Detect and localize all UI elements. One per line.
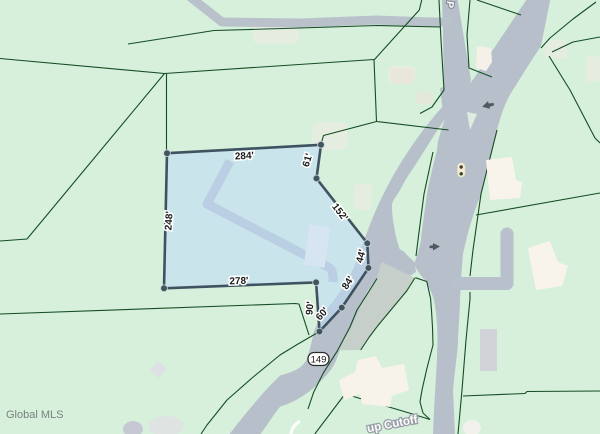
svg-text:149: 149 — [311, 355, 327, 366]
svg-text:278': 278' — [229, 276, 248, 288]
svg-text:Global MLS: Global MLS — [6, 409, 63, 421]
svg-text:284': 284' — [235, 151, 255, 163]
svg-text:90': 90' — [304, 301, 316, 315]
svg-text:248': 248' — [163, 211, 175, 231]
